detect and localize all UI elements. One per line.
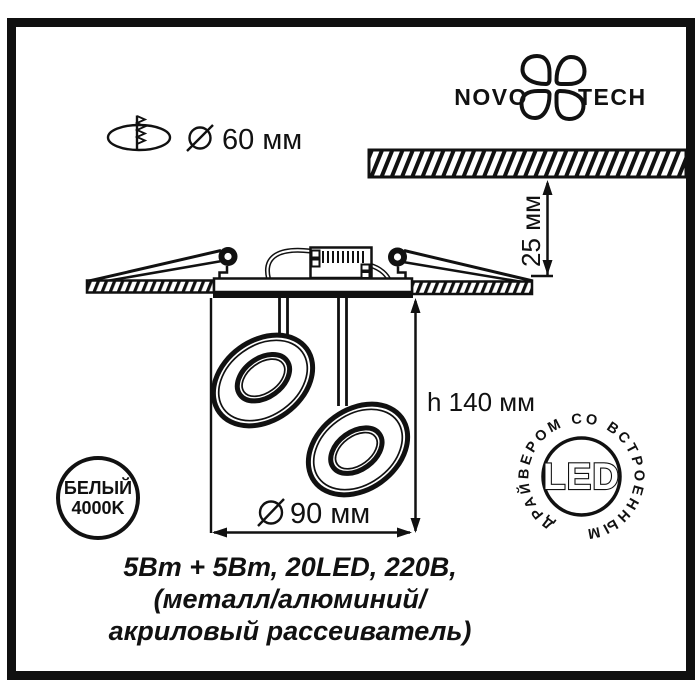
logo-text-right: TECH (578, 84, 647, 110)
height-label: h 140 мм (427, 387, 535, 417)
caption-line-materials-1: (металл/алюминий/ (90, 583, 490, 615)
stem-left (280, 298, 288, 335)
logo-text-left: NOVO (454, 84, 528, 110)
cut-hole-icon (108, 116, 170, 151)
fixture-diameter-label: 90 мм (290, 498, 370, 530)
trim-flange-left (87, 281, 214, 293)
cutout-diameter-label: 60 мм (222, 124, 302, 156)
base-plate (213, 292, 413, 298)
novotech-logo: NOVO TECH (454, 56, 646, 119)
led-driver-stamp: LED ДРАЙВЕРОМ СО ВСТРОЕННЫМ (514, 411, 646, 542)
mounting-plate (214, 279, 412, 293)
trim-flange-right (412, 282, 532, 295)
product-caption: 5Вт + 5Вт, 20LED, 220В, (металл/алюминий… (90, 551, 490, 647)
recess-depth-label: 25 мм (516, 195, 546, 267)
wire-left (267, 250, 310, 278)
color-temp-badge: БЕЛЫЙ 4000K (56, 456, 140, 540)
caption-line-power: 5Вт + 5Вт, 20LED, 220В, (90, 551, 490, 583)
spec-sheet: 60 мм NOVO TECH 25 мм (0, 0, 700, 700)
ceiling-section (369, 150, 686, 177)
led-head-right (291, 385, 425, 513)
caption-line-materials-2: акриловый рассеиватель) (90, 615, 490, 647)
fixture-diameter-icon (258, 499, 284, 526)
height-dimension (411, 298, 421, 533)
cutout-diameter-icon (187, 125, 213, 151)
logo-flower-icon (522, 56, 585, 119)
stamp-led-label: LED (543, 456, 620, 497)
driver-box (267, 248, 389, 280)
color-temp-name: БЕЛЫЙ (64, 478, 132, 498)
color-temp-value: 4000K (71, 498, 124, 518)
stem-right (339, 298, 347, 406)
led-head-left (196, 316, 330, 444)
